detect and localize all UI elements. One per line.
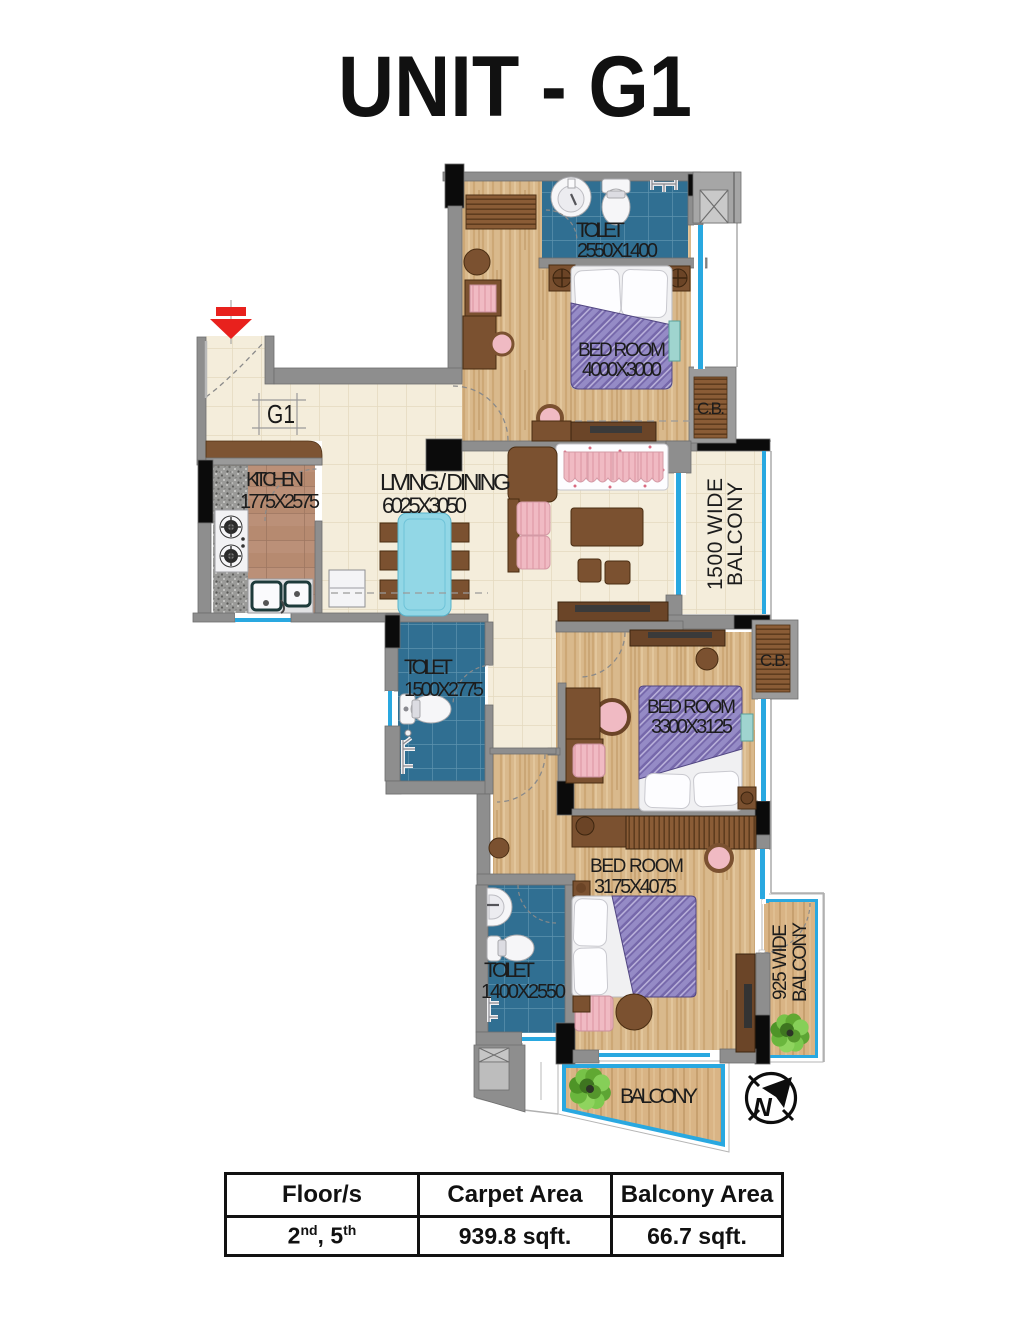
svg-text:3300X3125: 3300X3125 [651,716,733,738]
svg-text:1500X2775: 1500X2775 [404,679,484,701]
svg-text:BALCONY: BALCONY [724,482,747,586]
svg-text:BALCONY: BALCONY [790,922,811,1002]
svg-text:BED ROOM: BED ROOM [578,340,666,361]
svg-text:TOILET: TOILET [576,219,625,242]
svg-text:N: N [753,1092,773,1122]
svg-text:925 WIDE: 925 WIDE [770,924,791,1000]
svg-text:6025X3050: 6025X3050 [382,493,467,518]
svg-text:1400X2550: 1400X2550 [481,981,566,1003]
svg-text:TOILET: TOILET [484,959,535,982]
svg-text:UNIT - G1: UNIT - G1 [338,39,692,135]
svg-text:4000X3000: 4000X3000 [582,359,662,381]
svg-text:C.B.: C.B. [697,399,725,418]
svg-text:BED ROOM: BED ROOM [647,697,736,718]
svg-text:LIVING./ DINING: LIVING./ DINING [380,469,511,495]
svg-text:3175X4075: 3175X4075 [594,876,677,898]
svg-text:2550X1400: 2550X1400 [577,240,658,262]
svg-text:BED ROOM: BED ROOM [590,856,684,877]
svg-text:G1: G1 [267,399,295,429]
svg-text:1775X2575: 1775X2575 [240,491,320,513]
svg-text:C.B.: C.B. [760,651,789,670]
svg-text:KITCHEN: KITCHEN [246,469,304,491]
svg-text:BALCONY: BALCONY [620,1085,698,1108]
svg-text:TOILET: TOILET [404,656,453,679]
